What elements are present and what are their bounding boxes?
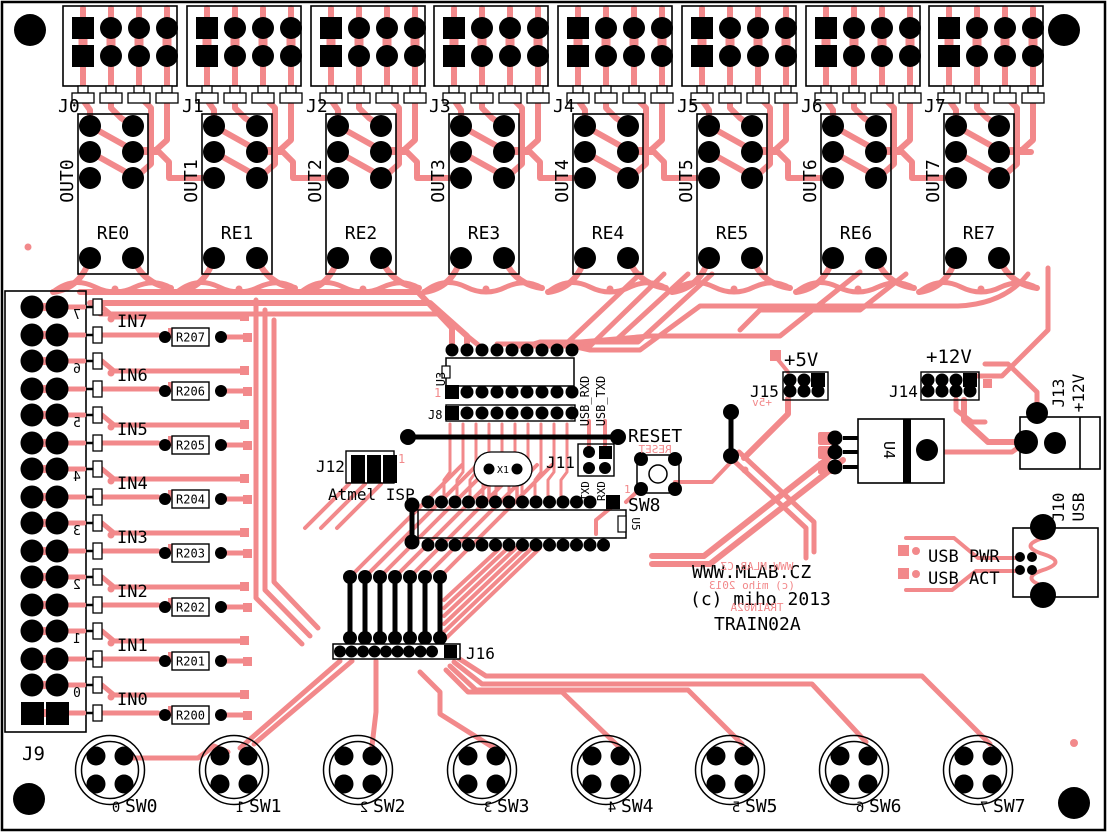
pcb-graphic (530, 539, 543, 552)
pcb-graphic (159, 655, 171, 667)
pcb-graphic (945, 115, 967, 137)
square-pad (443, 17, 465, 39)
pcb-graphic (983, 747, 1002, 766)
pcb-graphic (527, 93, 549, 103)
pcb-graphic (46, 594, 69, 617)
pcb-graphic (735, 775, 754, 794)
pcb-graphic (159, 601, 171, 613)
switch-digit-mirror: 2 (360, 800, 368, 816)
resistor-label: R205 (176, 439, 205, 453)
pcb-graphic (21, 486, 44, 509)
input-digit-mirror: 3 (73, 524, 81, 539)
pcb-graphic (21, 594, 44, 617)
pcb-graphic (536, 386, 549, 399)
pcb-graphic (570, 539, 583, 552)
pcb-graphic (994, 45, 1016, 67)
u3-outline (446, 358, 574, 386)
pcb-graphic (240, 474, 249, 483)
pcb-graphic (383, 469, 397, 483)
pcb-graphic (224, 45, 246, 67)
pcb-graphic (936, 385, 949, 398)
pcb-graphic (106, 86, 116, 93)
pcb-graphic (21, 350, 44, 373)
pcb-graphic (988, 115, 1010, 137)
pcb-graphic (93, 543, 102, 559)
pcb-graphic (433, 570, 447, 584)
square-pad (72, 45, 94, 67)
pcb-graphic (707, 775, 726, 794)
pcb-graphic (903, 419, 911, 483)
input-digit-mirror: 2 (73, 578, 81, 593)
pcb-graphic (100, 17, 122, 39)
pcb-graphic (812, 385, 825, 398)
pcb-graphic (1027, 565, 1037, 575)
pcb-graphic (93, 515, 102, 531)
pcb-graphic (46, 324, 69, 347)
pcb-graphic (1022, 45, 1044, 67)
pcb-graphic (476, 386, 489, 399)
pcb-graphic (122, 115, 144, 137)
pcb-graphic (122, 141, 144, 163)
pcb-layout-image: J0RE0OUT0J1RE1OUT1J2RE2OUT2J3RE3OUT3J4RE… (0, 0, 1107, 832)
pcb-graphic (426, 646, 438, 658)
switch-digit-mirror: 1 (236, 800, 244, 816)
pcb-graphic (156, 93, 178, 103)
input-label: IN4 (117, 474, 148, 494)
pcb-graphic (753, 86, 763, 93)
pcb-graphic (595, 17, 617, 39)
pcb-graphic (203, 141, 225, 163)
j11-label: J11 (546, 453, 575, 472)
relay-connector-label: J4 (553, 96, 575, 117)
switch-digit-mirror: 7 (980, 800, 988, 816)
pcb-graphic (422, 539, 435, 552)
switch-label: SW4 (621, 796, 654, 817)
pcb-graphic (955, 747, 974, 766)
switch-label: SW6 (869, 796, 902, 817)
input-digit-mirror: 1 (73, 632, 81, 647)
pcb-graphic (527, 17, 549, 39)
pcb-graphic (357, 646, 369, 658)
pcb-graphic (747, 93, 769, 103)
relay-connector-label: J0 (58, 96, 80, 117)
pcb-graphic (327, 115, 349, 137)
pcb-graphic (899, 17, 921, 39)
pcb-graphic (373, 570, 387, 584)
pcb-graphic (370, 167, 392, 189)
pcb-graphic (215, 439, 227, 451)
pcb-graphic (122, 247, 144, 269)
usb-act-label: USB ACT (928, 569, 1000, 589)
pcb-graphic (651, 93, 673, 103)
pcb-graphic (493, 247, 515, 269)
pcb-graphic (623, 17, 645, 39)
pcb-graphic (335, 775, 354, 794)
pcb-graphic (370, 247, 392, 269)
relay-output-label: OUT0 (57, 159, 78, 202)
pcb-graphic (741, 247, 763, 269)
pcb-graphic (373, 631, 387, 645)
pcb-graphic (159, 547, 171, 559)
pcb-graphic (741, 167, 763, 189)
pcb-graphic (449, 496, 462, 509)
pcb-graphic (93, 623, 102, 639)
relay-label: RE2 (345, 223, 378, 244)
pcb-graphic (950, 385, 963, 398)
pcb-graphic (583, 775, 602, 794)
pcb-graphic (994, 93, 1016, 103)
switch-digit-mirror: 6 (856, 800, 864, 816)
pcb-graphic (573, 86, 583, 93)
switch-label: SW2 (373, 796, 406, 817)
pcb-graphic (865, 247, 887, 269)
pcb-graphic (108, 640, 115, 647)
pcb-graphic (215, 709, 227, 721)
pcb-graphic (400, 429, 416, 445)
pcb-graphic (1000, 86, 1010, 93)
pcb-graphic (551, 386, 564, 399)
pcb-graphic (224, 17, 246, 39)
pcb-graphic (905, 86, 915, 93)
pcb-graphic (459, 747, 478, 766)
pcb-graphic (46, 540, 69, 563)
input-label: IN1 (117, 636, 148, 656)
pcb-graphic (477, 86, 487, 93)
pcb-graphic (252, 45, 274, 67)
relay-connector-label: J2 (306, 96, 328, 117)
pcb-graphic (243, 657, 252, 666)
pcb-graphic (461, 344, 474, 357)
pcb-graphic (211, 747, 230, 766)
switch-label: SW5 (745, 796, 778, 817)
pcb-graphic (871, 93, 893, 103)
pcb-graphic (723, 404, 739, 420)
pcb-graphic (159, 331, 171, 343)
pcb-graphic (215, 493, 227, 505)
pcb-graphic (79, 247, 101, 269)
pcb-graphic (46, 674, 69, 697)
mounting-hole (13, 783, 45, 815)
pcb-graphic (444, 645, 457, 658)
pcb-graphic (698, 115, 720, 137)
pcb-graphic (450, 167, 472, 189)
website-mirror-text: WWW.MLAB.CZ (720, 560, 793, 573)
square-pad (567, 45, 589, 67)
pcb-graphic (445, 406, 459, 420)
pcb-graphic (784, 385, 797, 398)
pcb-graphic (79, 167, 101, 189)
pcb-graphic (240, 312, 249, 321)
pcb-graphic (822, 115, 844, 137)
pcb-graphic (521, 407, 534, 420)
pcb-graphic (236, 286, 243, 293)
pcb-graphic (831, 775, 850, 794)
pcb-graphic (108, 478, 115, 485)
pcb-graphic (240, 366, 249, 375)
plus5v-label: +5V (784, 349, 818, 371)
pcb-graphic (491, 386, 504, 399)
pcb-graphic (115, 775, 134, 794)
pcb-graphic (240, 690, 249, 699)
pcb-graphic (606, 495, 620, 509)
pcb-graphic (159, 385, 171, 397)
pcb-graphic (623, 93, 645, 103)
pcb-graphic (649, 465, 667, 483)
pcb-graphic (723, 448, 739, 464)
j12-label: J12 (316, 457, 345, 476)
pcb-graphic (403, 570, 417, 584)
pcb-graphic (521, 344, 534, 357)
pcb-graphic (415, 646, 427, 658)
pcb-graphic (843, 17, 865, 39)
pcb-graphic (404, 93, 426, 103)
pcb-graphic (93, 569, 102, 585)
pcb-graphic (280, 93, 302, 103)
pcb-graphic (351, 455, 365, 469)
pcb-graphic (367, 455, 381, 469)
pcb-graphic (156, 17, 178, 39)
pcb-graphic (360, 286, 367, 293)
pcb-graphic (487, 747, 506, 766)
pcb-graphic (215, 601, 227, 613)
input-label: IN5 (117, 420, 148, 440)
switch-label: SW7 (993, 796, 1026, 817)
pcb-graphic (93, 705, 102, 721)
square-pad (443, 45, 465, 67)
pcb-graphic (912, 547, 920, 555)
switch-label: SW3 (497, 796, 530, 817)
pcb-graphic (944, 86, 954, 93)
pcb-graphic (243, 603, 252, 612)
pcb-graphic (607, 286, 614, 293)
pcb-graphic (100, 93, 122, 103)
resistor-label: R200 (176, 709, 205, 723)
pcb-graphic (536, 344, 549, 357)
j14-label: J14 (889, 382, 918, 401)
pcb-graphic (326, 86, 336, 93)
pcb-graphic (618, 516, 626, 532)
pcb-graphic (798, 385, 811, 398)
pcb-graphic (1014, 430, 1038, 454)
relay-connector-label: J3 (429, 96, 451, 117)
pcb-graphic (698, 141, 720, 163)
input-digit-mirror: 0 (73, 686, 81, 701)
pcb-graphic (725, 86, 735, 93)
j13-label: J13 (1049, 379, 1068, 408)
pcb-graphic (499, 93, 521, 103)
pcb-graphic (611, 775, 630, 794)
pcb-graphic (1015, 565, 1025, 575)
pcb-graphic (617, 141, 639, 163)
pcb-board: J0RE0OUT0J1RE1OUT1J2RE2OUT2J3RE3OUT3J4RE… (0, 0, 1107, 832)
pcb-graphic (240, 528, 249, 537)
pcb-graphic (955, 775, 974, 794)
pcb-graphic (128, 93, 150, 103)
rxd-label: RXD (595, 481, 608, 501)
atmel-isp-caption: Atmel ISP (328, 485, 415, 504)
pcb-graphic (471, 93, 493, 103)
pcb-graphic (859, 775, 878, 794)
pcb-graphic (25, 244, 32, 251)
pcb-graphic (574, 115, 596, 137)
pcb-graphic (224, 93, 246, 103)
relay-connector-label: J6 (801, 96, 823, 117)
pcb-graphic (450, 141, 472, 163)
pcb-graphic (122, 167, 144, 189)
pcb-graphic (240, 420, 249, 429)
pcb-graphic (698, 247, 720, 269)
pcb-graphic (115, 747, 134, 766)
reset-mirror-label: RESET (638, 443, 671, 456)
pcb-graphic (388, 570, 402, 584)
pcb-graphic (21, 620, 44, 643)
input-label: IN6 (117, 366, 148, 386)
pcb-graphic (215, 655, 227, 667)
pcb-graphic (1015, 552, 1025, 562)
pcb-graphic (483, 286, 490, 293)
relay-label: RE4 (592, 223, 625, 244)
pcb-graphic (243, 333, 252, 342)
mounting-hole (1058, 787, 1090, 819)
pcb-graphic (527, 45, 549, 67)
pcb-graphic (367, 469, 381, 483)
relay-connector-label: J7 (924, 96, 946, 117)
pcb-graphic (865, 141, 887, 163)
pcb-graphic (899, 45, 921, 67)
pcb-graphic (629, 86, 639, 93)
pcb-graphic (79, 115, 101, 137)
pcb-graphic (822, 247, 844, 269)
pcb-graphic (698, 167, 720, 189)
pcb-graphic (859, 747, 878, 766)
pcb-graphic (21, 324, 44, 347)
pcb-graphic (462, 539, 475, 552)
pcb-graphic (491, 344, 504, 357)
pcb-graphic (46, 458, 69, 481)
pcb-graphic (747, 17, 769, 39)
pcb-graphic (623, 45, 645, 67)
pcb-graphic (489, 496, 502, 509)
relay-connector-label: J1 (182, 96, 204, 117)
pcb-graphic (574, 167, 596, 189)
square-pad (691, 17, 713, 39)
j10-label: J10 (1049, 493, 1068, 522)
relay-label: RE1 (221, 223, 254, 244)
pcb-graphic (93, 677, 102, 693)
pcb-graphic (988, 141, 1010, 163)
pcb-graphic (108, 532, 115, 539)
pcb-graphic (159, 493, 171, 505)
j15-label: J15 (750, 382, 779, 401)
pcb-graphic (435, 496, 448, 509)
pcb-graphic (747, 45, 769, 67)
pcb-graphic (433, 631, 447, 645)
input-digit-mirror: 7 (73, 308, 81, 323)
pcb-graphic (370, 115, 392, 137)
pcb-graphic (46, 350, 69, 373)
pcb-graphic (499, 17, 521, 39)
pcb-graphic (243, 387, 252, 396)
pcb-graphic (651, 45, 673, 67)
board-name-mirror-text: TRAIN02A (730, 601, 783, 614)
pcb-graphic (651, 17, 673, 39)
relay-output-label: OUT1 (181, 159, 202, 202)
pcb-graphic (348, 17, 370, 39)
pcb-graphic (506, 386, 519, 399)
pcb-graphic (610, 429, 626, 445)
pcb-graphic (354, 86, 364, 93)
pcb-graphic (78, 86, 88, 93)
pcb-graphic (369, 646, 381, 658)
mounting-hole (1048, 14, 1080, 46)
pcb-graphic (1070, 739, 1078, 747)
pcb-graphic (21, 648, 44, 671)
relay-output-label: OUT3 (428, 159, 449, 202)
pcb-graphic (327, 141, 349, 163)
pcb-graphic (828, 431, 843, 446)
resistor-label: R207 (176, 331, 205, 345)
pcb-graphic (945, 167, 967, 189)
pcb-graphic (21, 512, 44, 535)
pcb-graphic (108, 586, 115, 593)
pcb-graphic (388, 631, 402, 645)
pcb-graphic (516, 539, 529, 552)
pcb-graphic (966, 17, 988, 39)
pcb-graphic (557, 539, 570, 552)
pcb-graphic (21, 702, 44, 725)
square-pad (567, 17, 589, 39)
pcb-graphic (828, 445, 843, 460)
pcb-graphic (21, 674, 44, 697)
usb-connector-label: USB (1069, 493, 1088, 522)
pcb-graphic (584, 539, 597, 552)
relay-label: RE0 (97, 223, 130, 244)
pcb-graphic (994, 17, 1016, 39)
pcb-graphic (741, 115, 763, 137)
pcb-graphic (476, 539, 489, 552)
pcb-graphic (392, 646, 404, 658)
relay-label: RE5 (716, 223, 749, 244)
input-digit-mirror: 6 (73, 362, 81, 377)
pcb-graphic (203, 167, 225, 189)
pcb-graphic (46, 378, 69, 401)
relay-label: RE7 (963, 223, 996, 244)
pcb-graphic (449, 539, 462, 552)
resistor-label: R201 (176, 655, 205, 669)
pcb-graphic (404, 17, 426, 39)
pcb-graphic (945, 141, 967, 163)
pcb-graphic (871, 45, 893, 67)
pcb-graphic (898, 545, 909, 556)
pcb-graphic (599, 446, 612, 459)
pcb-graphic (159, 439, 171, 451)
pcb-graphic (93, 327, 102, 343)
pcb-graphic (899, 93, 921, 103)
pcb-graphic (617, 115, 639, 137)
resistor-label: R202 (176, 601, 205, 615)
pcb-graphic (843, 93, 865, 103)
pcb-graphic (536, 407, 549, 420)
pcb-graphic (108, 316, 115, 323)
switch-digit-mirror: 5 (732, 800, 740, 816)
relay-output-label: OUT4 (552, 159, 573, 202)
pcb-graphic (849, 86, 859, 93)
pcb-graphic (156, 45, 178, 67)
pcb-graphic (583, 747, 602, 766)
pcb-graphic (634, 482, 648, 496)
pcb-graphic (46, 648, 69, 671)
pcb-graphic (1030, 582, 1056, 608)
